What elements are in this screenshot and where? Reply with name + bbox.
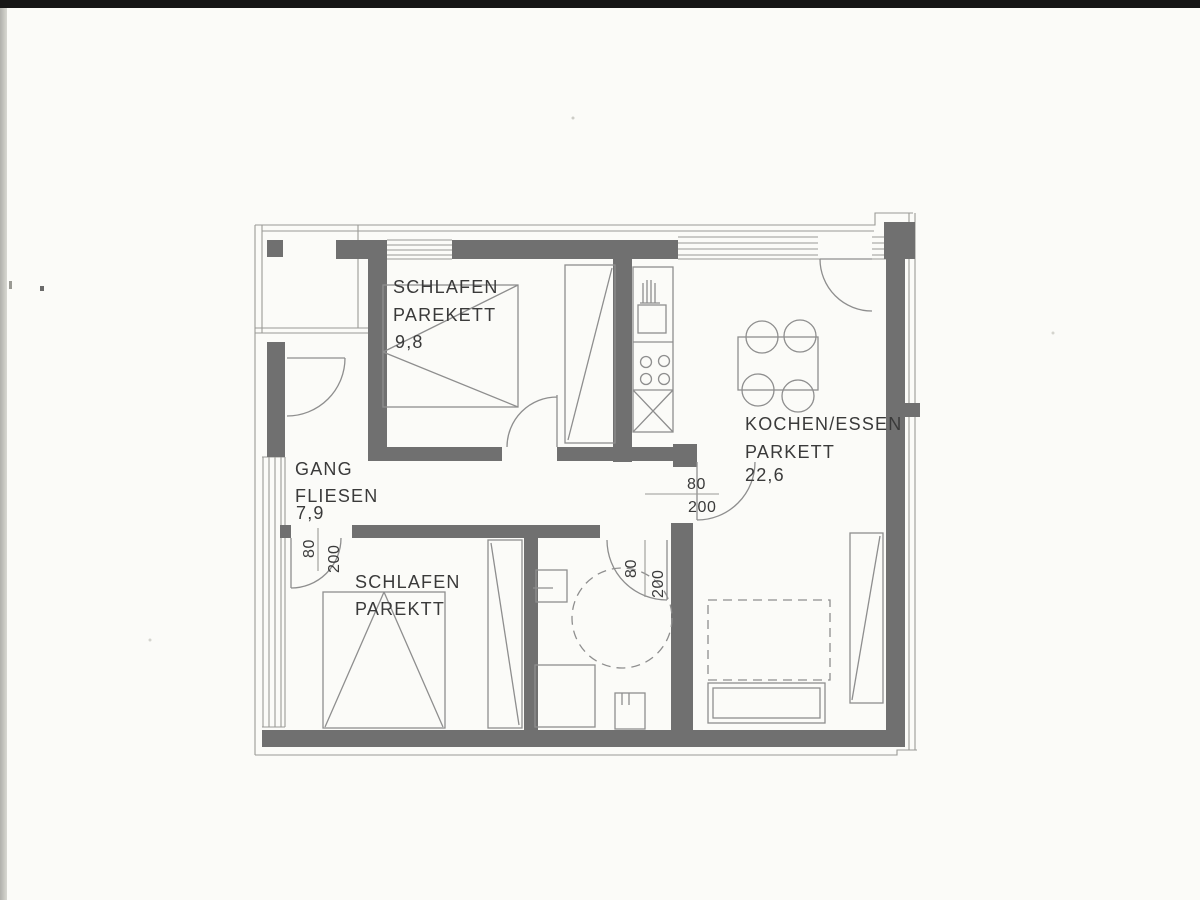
wall-bottom: [262, 730, 903, 747]
room-floor: PAREKETT: [393, 305, 496, 325]
room-name: KOCHEN/ESSEN: [745, 414, 902, 434]
washbasin: [536, 570, 567, 602]
speck: [1052, 332, 1055, 335]
dim-bedroom-bottom-door: 80 200: [301, 528, 343, 573]
room-name: SCHLAFEN: [393, 277, 499, 297]
kitchen-unit: [633, 267, 673, 432]
wardrobe-bedroom-top: [565, 265, 615, 443]
balcony-rail-lines: [909, 213, 915, 750]
bedroom-top-door-swing: [507, 395, 557, 447]
wardrobe-diagonal: [491, 543, 519, 725]
wall-bath-left: [524, 538, 538, 730]
dim-width: 80: [687, 476, 706, 493]
room-area: 7,9: [296, 503, 325, 523]
wardrobe-bedroom-bottom: [488, 540, 522, 728]
room-area: 9,8: [395, 332, 424, 352]
wardrobe-diagonal: [568, 268, 612, 440]
wall-bedroom-top-left: [368, 240, 387, 461]
floor-plan-drawing: 80 200 80 200 80 200 SCHLAFEN PAREKETT 9…: [0, 0, 1200, 900]
window-left: [262, 457, 285, 727]
room-label-kitchen-dining: KOCHEN/ESSEN PARKETT 22,6: [745, 414, 902, 485]
speck: [149, 639, 152, 642]
toilet: [615, 693, 645, 729]
room-name: SCHLAFEN: [355, 572, 461, 592]
sofa-outline: [708, 683, 825, 723]
sofa-inner: [713, 688, 820, 718]
dim-bathroom-door: 80 200: [623, 540, 667, 598]
dim-height: 200: [688, 499, 717, 516]
wall-right: [886, 245, 905, 747]
dining-set: [738, 320, 818, 412]
window-top-band: [678, 237, 886, 259]
wall-hall-bottom: [352, 525, 600, 538]
dim-kitchen-door: 80 200: [645, 476, 719, 516]
room-label-bedroom-top: SCHLAFEN PAREKETT 9,8: [393, 277, 499, 352]
wall-hall-top-left: [368, 447, 502, 461]
wall-kitchen-cap: [673, 444, 697, 467]
shower-tray: [535, 665, 595, 727]
dim-height: 200: [650, 570, 667, 599]
speck: [572, 117, 575, 120]
speck: [9, 281, 12, 289]
balcony-door-swing: [820, 259, 872, 311]
window-bedroom-top: [387, 240, 452, 259]
window-top-band-lines: [678, 237, 886, 259]
wall-hall-bottom-stub: [280, 525, 291, 538]
room-floor: PARKETT: [745, 442, 835, 462]
wall-hall-top-right: [557, 447, 673, 461]
dim-width: 80: [301, 539, 318, 558]
dim-width: 80: [623, 559, 640, 578]
faucet-icon: [640, 280, 660, 303]
wall-left-upper: [267, 342, 285, 457]
burner-3: [641, 374, 652, 385]
scanned-floorplan-page: 80 200 80 200 80 200 SCHLAFEN PAREKETT 9…: [0, 0, 1200, 900]
kitchen-counter-outline: [633, 267, 673, 432]
sofa-bed-dashed: [708, 600, 830, 680]
burner-4: [659, 374, 670, 385]
outer-boundary: [255, 213, 917, 755]
wall-top-middle: [452, 240, 678, 259]
window-bedroom-top-lines: [387, 240, 452, 259]
speck: [40, 286, 44, 291]
wardrobe-diagonal: [852, 536, 880, 700]
room-label-hallway: GANG FLIESEN 7,9: [295, 459, 378, 523]
wall-middle-vertical: [613, 259, 632, 462]
toilet-cistern-lines: [622, 693, 629, 705]
sofa-bed: [708, 600, 830, 723]
entry-pillar: [267, 240, 283, 257]
room-area: 22,6: [745, 465, 785, 485]
dim-height: 200: [326, 545, 343, 574]
burner-1: [641, 357, 652, 368]
chair-top-right: [784, 320, 816, 352]
wall-balcony-stub: [905, 403, 920, 417]
sink-basin: [638, 305, 666, 333]
appliance-x-symbol: [633, 390, 673, 432]
boundary-outline: [255, 213, 917, 755]
chair-bottom-right: [782, 380, 814, 412]
entry-door-swing: [287, 358, 345, 416]
window-left-lines: [262, 457, 285, 727]
walls: [262, 222, 920, 747]
room-name: GANG: [295, 459, 353, 479]
wall-bath-right: [671, 523, 693, 730]
wardrobe-living: [850, 533, 883, 703]
burner-2: [659, 356, 670, 367]
room-floor: PAREKTT: [355, 599, 445, 619]
